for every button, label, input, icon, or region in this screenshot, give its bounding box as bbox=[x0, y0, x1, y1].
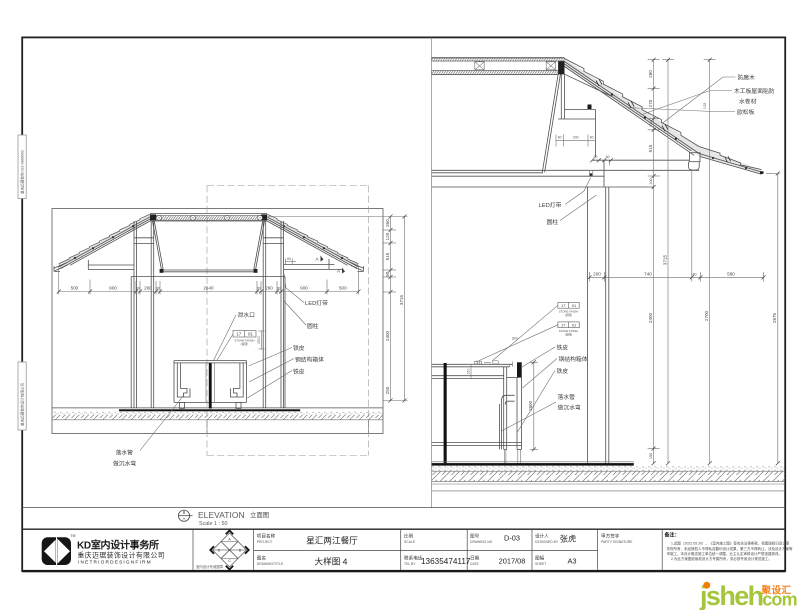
svg-text:立面图: 立面图 bbox=[250, 510, 269, 519]
svg-text:60: 60 bbox=[277, 287, 281, 291]
svg-text:(瓷砖): (瓷砖) bbox=[241, 341, 249, 346]
svg-text:250: 250 bbox=[385, 386, 390, 394]
svg-text:聚设汇: 聚设汇 bbox=[761, 585, 792, 597]
svg-text:PROJECT: PROJECT bbox=[257, 540, 273, 544]
svg-text:2700: 2700 bbox=[704, 310, 709, 321]
svg-text:1.此图（2022.05.30）、《室内施工图》签有关法律条: 1.此图（2022.05.30）、《室内施工图》签有关法律条款，我图版权归设计事 bbox=[671, 541, 790, 546]
svg-text:SHEET: SHEET bbox=[535, 562, 546, 566]
svg-text:室内设计专用图章: 室内设计专用图章 bbox=[196, 564, 224, 569]
svg-text:重庆迈琚装饰设计有限公司: 重庆迈琚装饰设计有限公司 bbox=[78, 550, 166, 559]
svg-text:DRAWING NO: DRAWING NO bbox=[470, 540, 493, 544]
svg-text:60: 60 bbox=[558, 136, 562, 140]
svg-text:120: 120 bbox=[385, 232, 390, 240]
svg-text:2500: 2500 bbox=[257, 336, 261, 344]
svg-text:3715: 3715 bbox=[399, 294, 404, 305]
svg-text:铁皮: 铁皮 bbox=[557, 367, 569, 375]
svg-text:60: 60 bbox=[287, 257, 291, 261]
svg-text:580: 580 bbox=[727, 271, 735, 276]
svg-text:设计人: 设计人 bbox=[535, 533, 549, 540]
svg-text:(60): (60) bbox=[512, 337, 518, 341]
svg-text:2400: 2400 bbox=[385, 330, 390, 341]
svg-text:2640: 2640 bbox=[203, 286, 214, 291]
svg-text:INETRIORDESIGNFIRM: INETRIORDESIGNFIRM bbox=[78, 560, 152, 566]
svg-text:500: 500 bbox=[71, 286, 79, 291]
svg-text:740: 740 bbox=[644, 271, 652, 276]
svg-text:星汇两江餐厅: 星汇两江餐厅 bbox=[306, 536, 358, 546]
svg-text:17: 17 bbox=[236, 332, 241, 337]
svg-text:13635474117: 13635474117 bbox=[421, 557, 471, 566]
svg-text:270: 270 bbox=[648, 99, 653, 107]
svg-text:务所所有，未经授权人不得私自翻印设计成果，第三方不得转让，涉: 务所所有，未经授权人不得私自翻印设计成果，第三方不得转让，涉及设计方案等 bbox=[667, 546, 793, 551]
svg-text:01: 01 bbox=[248, 332, 253, 337]
svg-text:防腐木: 防腐木 bbox=[738, 74, 756, 82]
svg-text:60: 60 bbox=[594, 155, 598, 159]
svg-text:(瓷砖): (瓷砖) bbox=[565, 313, 573, 317]
svg-text:900: 900 bbox=[300, 286, 308, 291]
svg-text:2.为此方案图纸版权设计方专属所有，务必按专用设计规范施工。: 2.为此方案图纸版权设计方专属所有，务必按专用设计规范施工。 bbox=[671, 556, 772, 561]
svg-text:DESIGNED BY: DESIGNED BY bbox=[535, 540, 559, 544]
svg-text:100: 100 bbox=[649, 178, 653, 184]
svg-text:260: 260 bbox=[265, 286, 273, 291]
svg-text:铁皮: 铁皮 bbox=[293, 368, 305, 376]
svg-text:比例: 比例 bbox=[404, 533, 414, 540]
svg-text:欧松板: 欧松板 bbox=[737, 108, 755, 116]
svg-text:60: 60 bbox=[136, 287, 140, 291]
svg-text:LED灯带: LED灯带 bbox=[305, 299, 328, 307]
svg-text:17: 17 bbox=[561, 322, 566, 327]
svg-text:200: 200 bbox=[573, 136, 579, 140]
svg-text:重庆迈琚装饰设计有限公司: 重庆迈琚装饰设计有限公司 bbox=[20, 382, 25, 426]
svg-text:铁皮: 铁皮 bbox=[557, 344, 569, 352]
svg-text:900: 900 bbox=[109, 286, 117, 291]
svg-text:ELEVATION: ELEVATION bbox=[198, 510, 245, 520]
svg-text:60: 60 bbox=[590, 136, 594, 140]
svg-text:落水管: 落水管 bbox=[116, 449, 134, 457]
svg-text:8: 8 bbox=[183, 510, 186, 516]
svg-text:260: 260 bbox=[144, 286, 152, 291]
svg-text:TM: TM bbox=[71, 534, 76, 538]
svg-text:260: 260 bbox=[385, 219, 390, 227]
svg-text:2400: 2400 bbox=[648, 312, 653, 323]
svg-text:260: 260 bbox=[648, 70, 653, 78]
svg-text:张虎: 张虎 bbox=[560, 534, 576, 544]
svg-text:DATE: DATE bbox=[470, 562, 480, 566]
svg-text:水卷材: 水卷材 bbox=[739, 98, 757, 106]
svg-text:木工板屋面贴防: 木工板屋面贴防 bbox=[734, 87, 775, 95]
svg-text:图幅: 图幅 bbox=[535, 555, 545, 562]
svg-text:60: 60 bbox=[606, 155, 610, 159]
svg-text:联系电话: 联系电话 bbox=[404, 555, 423, 562]
svg-text:0.25: 0.25 bbox=[703, 103, 707, 110]
svg-text:515: 515 bbox=[648, 144, 653, 152]
svg-text:圆柱: 圆柱 bbox=[307, 322, 319, 330]
svg-text:Scale 1 : 50: Scale 1 : 50 bbox=[199, 521, 227, 527]
svg-text:大样图 4: 大样图 4 bbox=[315, 555, 348, 566]
svg-text:01: 01 bbox=[572, 303, 577, 308]
svg-text:17: 17 bbox=[561, 303, 566, 308]
svg-text:做沉水弯: 做沉水弯 bbox=[558, 404, 581, 412]
svg-text:甲施工，本设计概念施工单位统一调整，业主认定审核设计严禁违建: 甲施工，本设计概念施工单位统一调整，业主认定审核设计严禁违建修改。 bbox=[667, 551, 783, 556]
svg-text:150: 150 bbox=[649, 453, 653, 459]
svg-text:100: 100 bbox=[649, 121, 653, 127]
svg-text:落水管: 落水管 bbox=[558, 393, 576, 401]
svg-text:圆柱: 圆柱 bbox=[547, 218, 559, 226]
svg-text:铁皮: 铁皮 bbox=[293, 344, 305, 352]
svg-text:图名: 图名 bbox=[257, 555, 266, 562]
svg-text:01: 01 bbox=[572, 322, 577, 327]
svg-text:LED灯带: LED灯带 bbox=[539, 201, 562, 209]
svg-text:DRAWING/TITLE: DRAWING/TITLE bbox=[257, 562, 284, 566]
svg-text:钢结构箱体: 钢结构箱体 bbox=[295, 356, 324, 364]
svg-text:2675: 2675 bbox=[772, 312, 777, 323]
svg-text:TEL BY: TEL BY bbox=[404, 562, 416, 566]
svg-text:150: 150 bbox=[467, 369, 471, 375]
svg-text:80: 80 bbox=[693, 272, 697, 276]
svg-text:备注：: 备注： bbox=[664, 531, 680, 538]
svg-text:A3: A3 bbox=[567, 557, 576, 566]
svg-text:KD室内设计事务所: KD室内设计事务所 bbox=[77, 538, 159, 551]
svg-text:重庆迈琚装饰 023-6868663: 重庆迈琚装饰 023-6868663 bbox=[20, 150, 25, 194]
svg-text:泄水口: 泄水口 bbox=[238, 311, 256, 319]
svg-text:项目名称: 项目名称 bbox=[257, 533, 276, 540]
svg-text:PARTY SIGNATURE: PARTY SIGNATURE bbox=[601, 540, 633, 544]
svg-text:SCALE: SCALE bbox=[404, 540, 416, 544]
svg-text:3715: 3715 bbox=[662, 254, 667, 265]
svg-text:D-03: D-03 bbox=[504, 534, 520, 543]
svg-text:2017/08: 2017/08 bbox=[499, 557, 526, 566]
svg-text:60: 60 bbox=[257, 287, 261, 291]
svg-text:60: 60 bbox=[156, 287, 160, 291]
svg-text:500: 500 bbox=[339, 286, 347, 291]
svg-text:(瓷砖): (瓷砖) bbox=[565, 332, 573, 336]
svg-text:90: 90 bbox=[385, 271, 390, 277]
svg-text:做沉水弯: 做沉水弯 bbox=[113, 460, 136, 468]
svg-text:甲方签字: 甲方签字 bbox=[601, 533, 620, 540]
svg-text:515: 515 bbox=[385, 252, 390, 260]
svg-text:1800: 1800 bbox=[528, 400, 533, 411]
svg-text:200: 200 bbox=[593, 271, 601, 276]
svg-text:钢结构箱体: 钢结构箱体 bbox=[559, 355, 588, 363]
